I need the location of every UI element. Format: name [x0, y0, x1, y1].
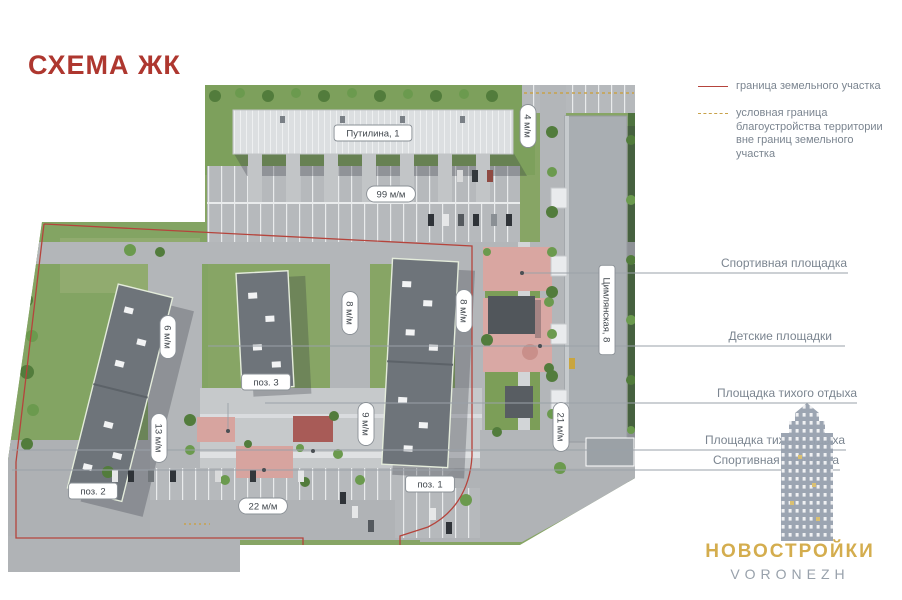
watermark-city: VORONEZH [695, 566, 885, 582]
distance-badge: 9 м/м [358, 403, 374, 446]
distance-badge: 8 м/м [342, 292, 358, 335]
svg-text:21 м/м: 21 м/м [555, 413, 566, 442]
svg-text:22 м/м: 22 м/м [249, 501, 278, 512]
sports-ground-top [483, 247, 552, 291]
distance-badge: 4 м/м [520, 105, 536, 148]
position-badge: поз. 2 [69, 483, 118, 499]
distance-badge: 99 м/м [367, 186, 416, 202]
watermark-tower-icon [752, 403, 862, 545]
svg-text:4 м/м: 4 м/м [522, 114, 533, 138]
svg-text:8 м/м: 8 м/м [458, 299, 469, 323]
callout-children-playgrounds: Детские площадки [728, 329, 832, 343]
position-badge: поз. 1 [406, 476, 455, 492]
svg-text:Путилина, 1: Путилина, 1 [346, 128, 399, 139]
callout-sports-ground-1: Спортивная площадка [721, 256, 847, 270]
svg-text:6 м/м: 6 м/м [162, 325, 173, 349]
children-playground-2 [236, 446, 293, 478]
svg-text:8 м/м: 8 м/м [344, 301, 355, 325]
svg-text:поз. 1: поз. 1 [417, 479, 442, 490]
callout-quiet-rest-1: Площадка тихого отдыха [717, 386, 857, 400]
position-badge: поз. 3 [242, 374, 291, 390]
distance-badge: 21 м/м [553, 403, 569, 452]
distance-badge: 22 м/м [239, 498, 288, 514]
distance-badge: 6 м/м [160, 316, 176, 359]
distance-badge: 13 м/м [151, 414, 167, 463]
watermark-brand: НОВОСТРОЙКИ [695, 541, 885, 563]
sports-ground-bottom [293, 416, 333, 442]
svg-text:поз. 3: поз. 3 [253, 377, 278, 388]
svg-text:Цимлянская, 8: Цимлянская, 8 [601, 278, 612, 343]
svg-text:13 м/м: 13 м/м [153, 424, 164, 453]
svg-text:поз. 2: поз. 2 [80, 486, 105, 497]
address-badge: Путилина, 1 [334, 125, 412, 141]
svg-text:9 м/м: 9 м/м [360, 412, 371, 436]
address-badge: Цимлянская, 8 [599, 265, 615, 354]
distance-badge: 8 м/м [456, 290, 472, 333]
svg-text:99 м/м: 99 м/м [377, 189, 406, 200]
